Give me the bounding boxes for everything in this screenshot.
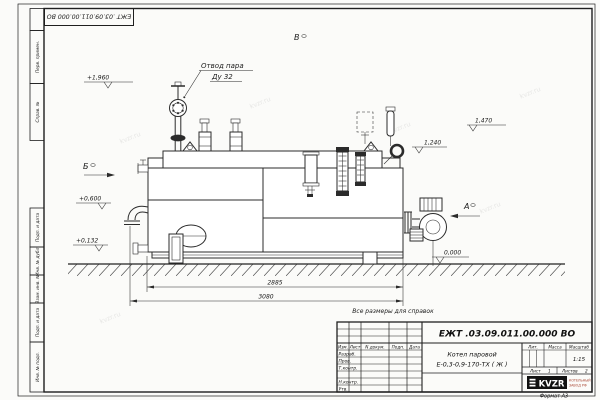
side-strip-upper: Перв. примен. Справ. № — [30, 9, 44, 141]
svg-text:+1,960: +1,960 — [87, 75, 109, 82]
col-header: Изм. — [338, 344, 348, 349]
strip-label: Инв. № дубл. — [35, 246, 41, 275]
stamp-doc-number: ЕЖТ .03.09.011.00.000 ВО — [47, 13, 132, 20]
strip-label: Перв. примен. — [35, 41, 41, 73]
dimension-inner: 2885 — [267, 280, 282, 287]
format-note: Формат А3 — [540, 394, 568, 400]
pump-motor — [420, 198, 442, 211]
boiler-drawing — [124, 82, 447, 266]
front-valve — [138, 160, 148, 174]
logo-caption-line2: ЗАВОД РФ — [569, 384, 587, 388]
col-header: Дата — [408, 344, 420, 349]
svg-text:Отвод пара: Отвод пара — [201, 62, 244, 70]
sig-row: Н.контр. — [339, 379, 359, 385]
sig-row: Т.контр. — [339, 365, 358, 371]
product-name-line2: Е-0,3-0,9-170-ТХ ( Ж ) — [437, 362, 508, 369]
view-label-top: В — [294, 33, 306, 42]
sheets-label: Листов — [561, 369, 578, 374]
elevation-mark: 1,470 — [467, 118, 506, 132]
lever-fitting — [386, 107, 395, 146]
boiler-drum — [163, 151, 382, 168]
steam-outlet-callout: Отвод пара Ду 32 — [183, 62, 253, 98]
strip-label: Подп. и дата — [35, 308, 41, 338]
side-strip-lower: Подп. и дата Инв. № дубл. Взам. инв. № П… — [30, 208, 44, 392]
drawing-sheet: kvzr.ru kvzr.ru kvzr.ru kvzr.ru kvzr.ru … — [0, 0, 600, 400]
sheets-total: 2 — [585, 369, 588, 374]
sheet-number: 1 — [548, 369, 551, 374]
feed-elbow — [124, 206, 148, 224]
view-arrow-icon — [107, 173, 115, 177]
drain-nozzle — [133, 243, 148, 254]
view-arrow-icon — [450, 214, 458, 218]
logo-caption-line1: КОТЕЛЬНЫЙ — [569, 378, 591, 383]
sig-row: Утв. — [339, 386, 348, 392]
svg-text:1,470: 1,470 — [475, 118, 492, 125]
support-leg — [363, 252, 377, 264]
ground-hatching — [68, 265, 565, 277]
level-gauge — [355, 152, 366, 186]
elevation-mark: 0,000 — [432, 250, 469, 264]
scale-value: 1:15 — [573, 357, 586, 363]
kvzr-logo: KVZR КОТЕЛЬНЫЙ ЗАВОД РФ — [527, 376, 591, 389]
ground-line — [68, 264, 565, 276]
lit-label: Лит. — [527, 344, 538, 349]
watermark-text: kvzr.ru — [118, 130, 141, 146]
view-label-right: А — [450, 202, 480, 218]
logo-text: KVZR — [539, 379, 565, 389]
col-header: Лист — [349, 344, 361, 349]
safety-valve — [230, 119, 242, 151]
elevation-mark: +1,960 — [84, 75, 133, 89]
view-label-left: Б — [83, 162, 115, 177]
col-header: Подп. — [392, 344, 405, 349]
svg-text:А: А — [463, 202, 469, 211]
safety-valve — [199, 119, 211, 151]
view-ref-mark — [302, 35, 306, 38]
titleblock-doc-number: ЕЖТ .03.09.011.00.000 ВО — [439, 330, 576, 340]
strip-label: Подп. и дата — [35, 213, 41, 243]
title-block: Изм. Лист N докум. Подп. Дата Разраб. Пр… — [337, 322, 592, 400]
strip-label: Справ. № — [35, 101, 41, 122]
lifting-lug — [364, 142, 378, 151]
dimension-overall: 3080 — [258, 294, 273, 301]
svg-text:Ду 32: Ду 32 — [211, 73, 233, 81]
feed-pump — [404, 198, 447, 266]
strip-label: Инв. № подл. — [35, 352, 41, 382]
steam-valve — [170, 82, 187, 151]
drawing-canvas: kvzr.ru kvzr.ru kvzr.ru kvzr.ru kvzr.ru … — [0, 0, 600, 400]
strip-label: Взам. инв. № — [35, 274, 41, 304]
elevation-mark: 1,240 — [412, 140, 447, 154]
lifting-lug — [183, 142, 197, 151]
pump-volute — [420, 214, 447, 241]
svg-text:+0,132: +0,132 — [76, 238, 98, 245]
elevation-mark: +0,132 — [73, 238, 108, 252]
mass-label: Масса — [548, 344, 562, 349]
view-ref-mark — [471, 204, 475, 207]
sig-row: Пров. — [339, 358, 352, 364]
view-ref-mark — [91, 164, 95, 167]
product-name-line1: Котел паровой — [447, 352, 496, 359]
svg-text:1,240: 1,240 — [424, 140, 441, 147]
svg-text:+0,600: +0,600 — [79, 196, 101, 203]
watermark-text: kvzr.ru — [518, 85, 541, 101]
svg-text:Б: Б — [83, 162, 89, 171]
level-gauge — [336, 147, 349, 196]
sig-row: Разраб. — [339, 351, 356, 357]
svg-text:В: В — [294, 33, 300, 42]
watermark-text: kvzr.ru — [98, 310, 121, 326]
scale-label: Масштаб — [569, 344, 589, 349]
watermark-text: kvzr.ru — [248, 95, 271, 111]
col-header: N докум. — [365, 344, 384, 349]
elevation-mark: +0,600 — [76, 196, 111, 210]
sheet-label: Лист — [529, 369, 541, 374]
dashed-fitting-outline — [357, 112, 373, 144]
reference-note: Все размеры для справок — [352, 308, 434, 315]
svg-text:0,000: 0,000 — [444, 250, 461, 257]
watermark-text: kvzr.ru — [478, 200, 501, 216]
